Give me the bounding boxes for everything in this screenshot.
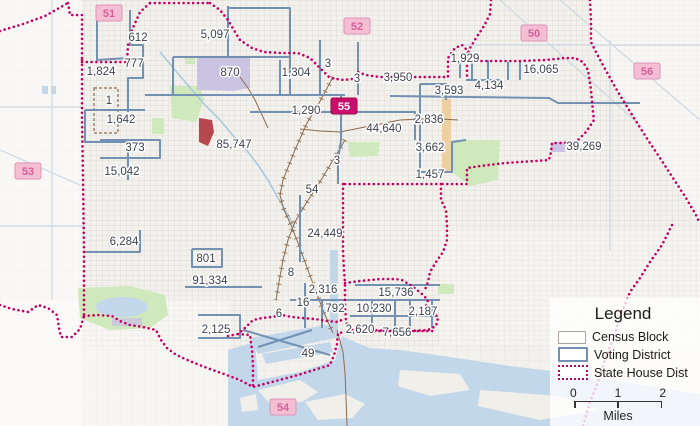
census-count-label: 2,836 [415, 114, 444, 126]
voting-district-swatch [558, 347, 588, 362]
district-badge-number: 50 [528, 28, 540, 40]
census-count-label: 1,304 [282, 67, 311, 79]
district-badge: 54 [270, 399, 296, 415]
map-canvas[interactable]: 6125,0977771,8248701,30431,9294,13416,06… [0, 0, 700, 426]
census-count-label: 612 [128, 32, 147, 44]
legend-title: Legend [558, 304, 688, 324]
census-count-label: 6,284 [110, 236, 139, 248]
park-lake [96, 297, 148, 317]
census-count-label: 5,097 [201, 29, 230, 41]
district-badge-number: 54 [277, 402, 290, 414]
legend-item-voting-district: Voting District [558, 347, 700, 362]
legend-item-census-block: Census Block [558, 330, 700, 344]
legend-panel: Legend Census Block Voting District Stat… [550, 298, 700, 426]
district-badge: 50 [521, 25, 547, 41]
census-count-label: 15,042 [104, 166, 139, 178]
census-count-label: 1,642 [107, 114, 136, 126]
census-count-label: 1,457 [416, 169, 445, 181]
census-count-label: 8 [288, 267, 294, 279]
census-count-label: 10,230 [356, 303, 391, 315]
census-count-label: 54 [306, 184, 319, 196]
legend-item-label: Voting District [594, 348, 670, 362]
census-block-swatch [558, 331, 586, 344]
scale-tick-0: 0 [570, 386, 577, 400]
scale-bar-line [574, 401, 662, 408]
district-badge: 52 [344, 18, 370, 34]
census-count-label: 801 [196, 253, 215, 265]
census-count-label: 24,449 [307, 228, 342, 240]
district-badge: 56 [634, 63, 660, 79]
census-count-label: 91,334 [192, 275, 228, 287]
legend-item-label: Census Block [592, 330, 668, 344]
census-count-label: 16 [297, 297, 310, 309]
census-count-label: 16,065 [523, 64, 558, 76]
census-count-label: 792 [325, 303, 344, 315]
census-count-label: 2,187 [409, 306, 438, 318]
scale-bar: 0 1 2 Miles [570, 386, 666, 423]
census-count-label: 1 [106, 95, 112, 107]
district-badge: 53 [15, 163, 41, 179]
district-badge-number: 53 [22, 166, 34, 178]
census-count-label: 2,316 [309, 284, 338, 296]
legend-item-state-house-district: State House Dist [558, 365, 700, 380]
census-count-label: 373 [125, 142, 144, 154]
district-badge-number: 56 [641, 66, 653, 78]
census-count-label: 1,824 [87, 66, 116, 78]
census-count-label: 777 [124, 58, 143, 70]
census-count-label: 3,662 [416, 142, 445, 154]
census-count-label: 39,269 [566, 141, 601, 153]
scale-unit-label: Miles [570, 409, 666, 423]
census-count-label: 6 [276, 308, 282, 320]
scale-tick-2: 2 [659, 386, 666, 400]
district-badge-number: 51 [103, 8, 115, 20]
census-count-label: 49 [302, 348, 315, 360]
census-count-label: 2,125 [202, 324, 231, 336]
census-count-label: 1,929 [451, 53, 480, 65]
state-house-district-swatch [558, 365, 588, 380]
district-badge: 55 [331, 98, 357, 114]
census-count-label: 3 [334, 155, 340, 167]
scale-tick-1: 1 [615, 386, 622, 400]
district-badge-number: 52 [351, 21, 363, 33]
census-count-label: 3,950 [384, 72, 413, 84]
district-badge-number: 55 [338, 101, 350, 113]
census-count-label: 870 [220, 67, 239, 79]
district-badge: 51 [96, 5, 122, 21]
census-count-label: 3 [354, 73, 360, 85]
census-count-label: 1,290 [292, 105, 321, 117]
scale-bar-ticks: 0 1 2 [570, 386, 666, 400]
census-count-label: 2,620 [346, 324, 375, 336]
census-count-label: 3,593 [435, 85, 464, 97]
census-count-label: 85,747 [216, 139, 251, 151]
census-count-label: 15,736 [378, 287, 413, 299]
census-count-label: 4,134 [475, 80, 504, 92]
census-count-label: 44,640 [366, 123, 401, 135]
census-count-label: 7,656 [383, 327, 412, 339]
legend-item-label: State House Dist [594, 366, 688, 380]
census-count-label: 3 [325, 58, 331, 70]
